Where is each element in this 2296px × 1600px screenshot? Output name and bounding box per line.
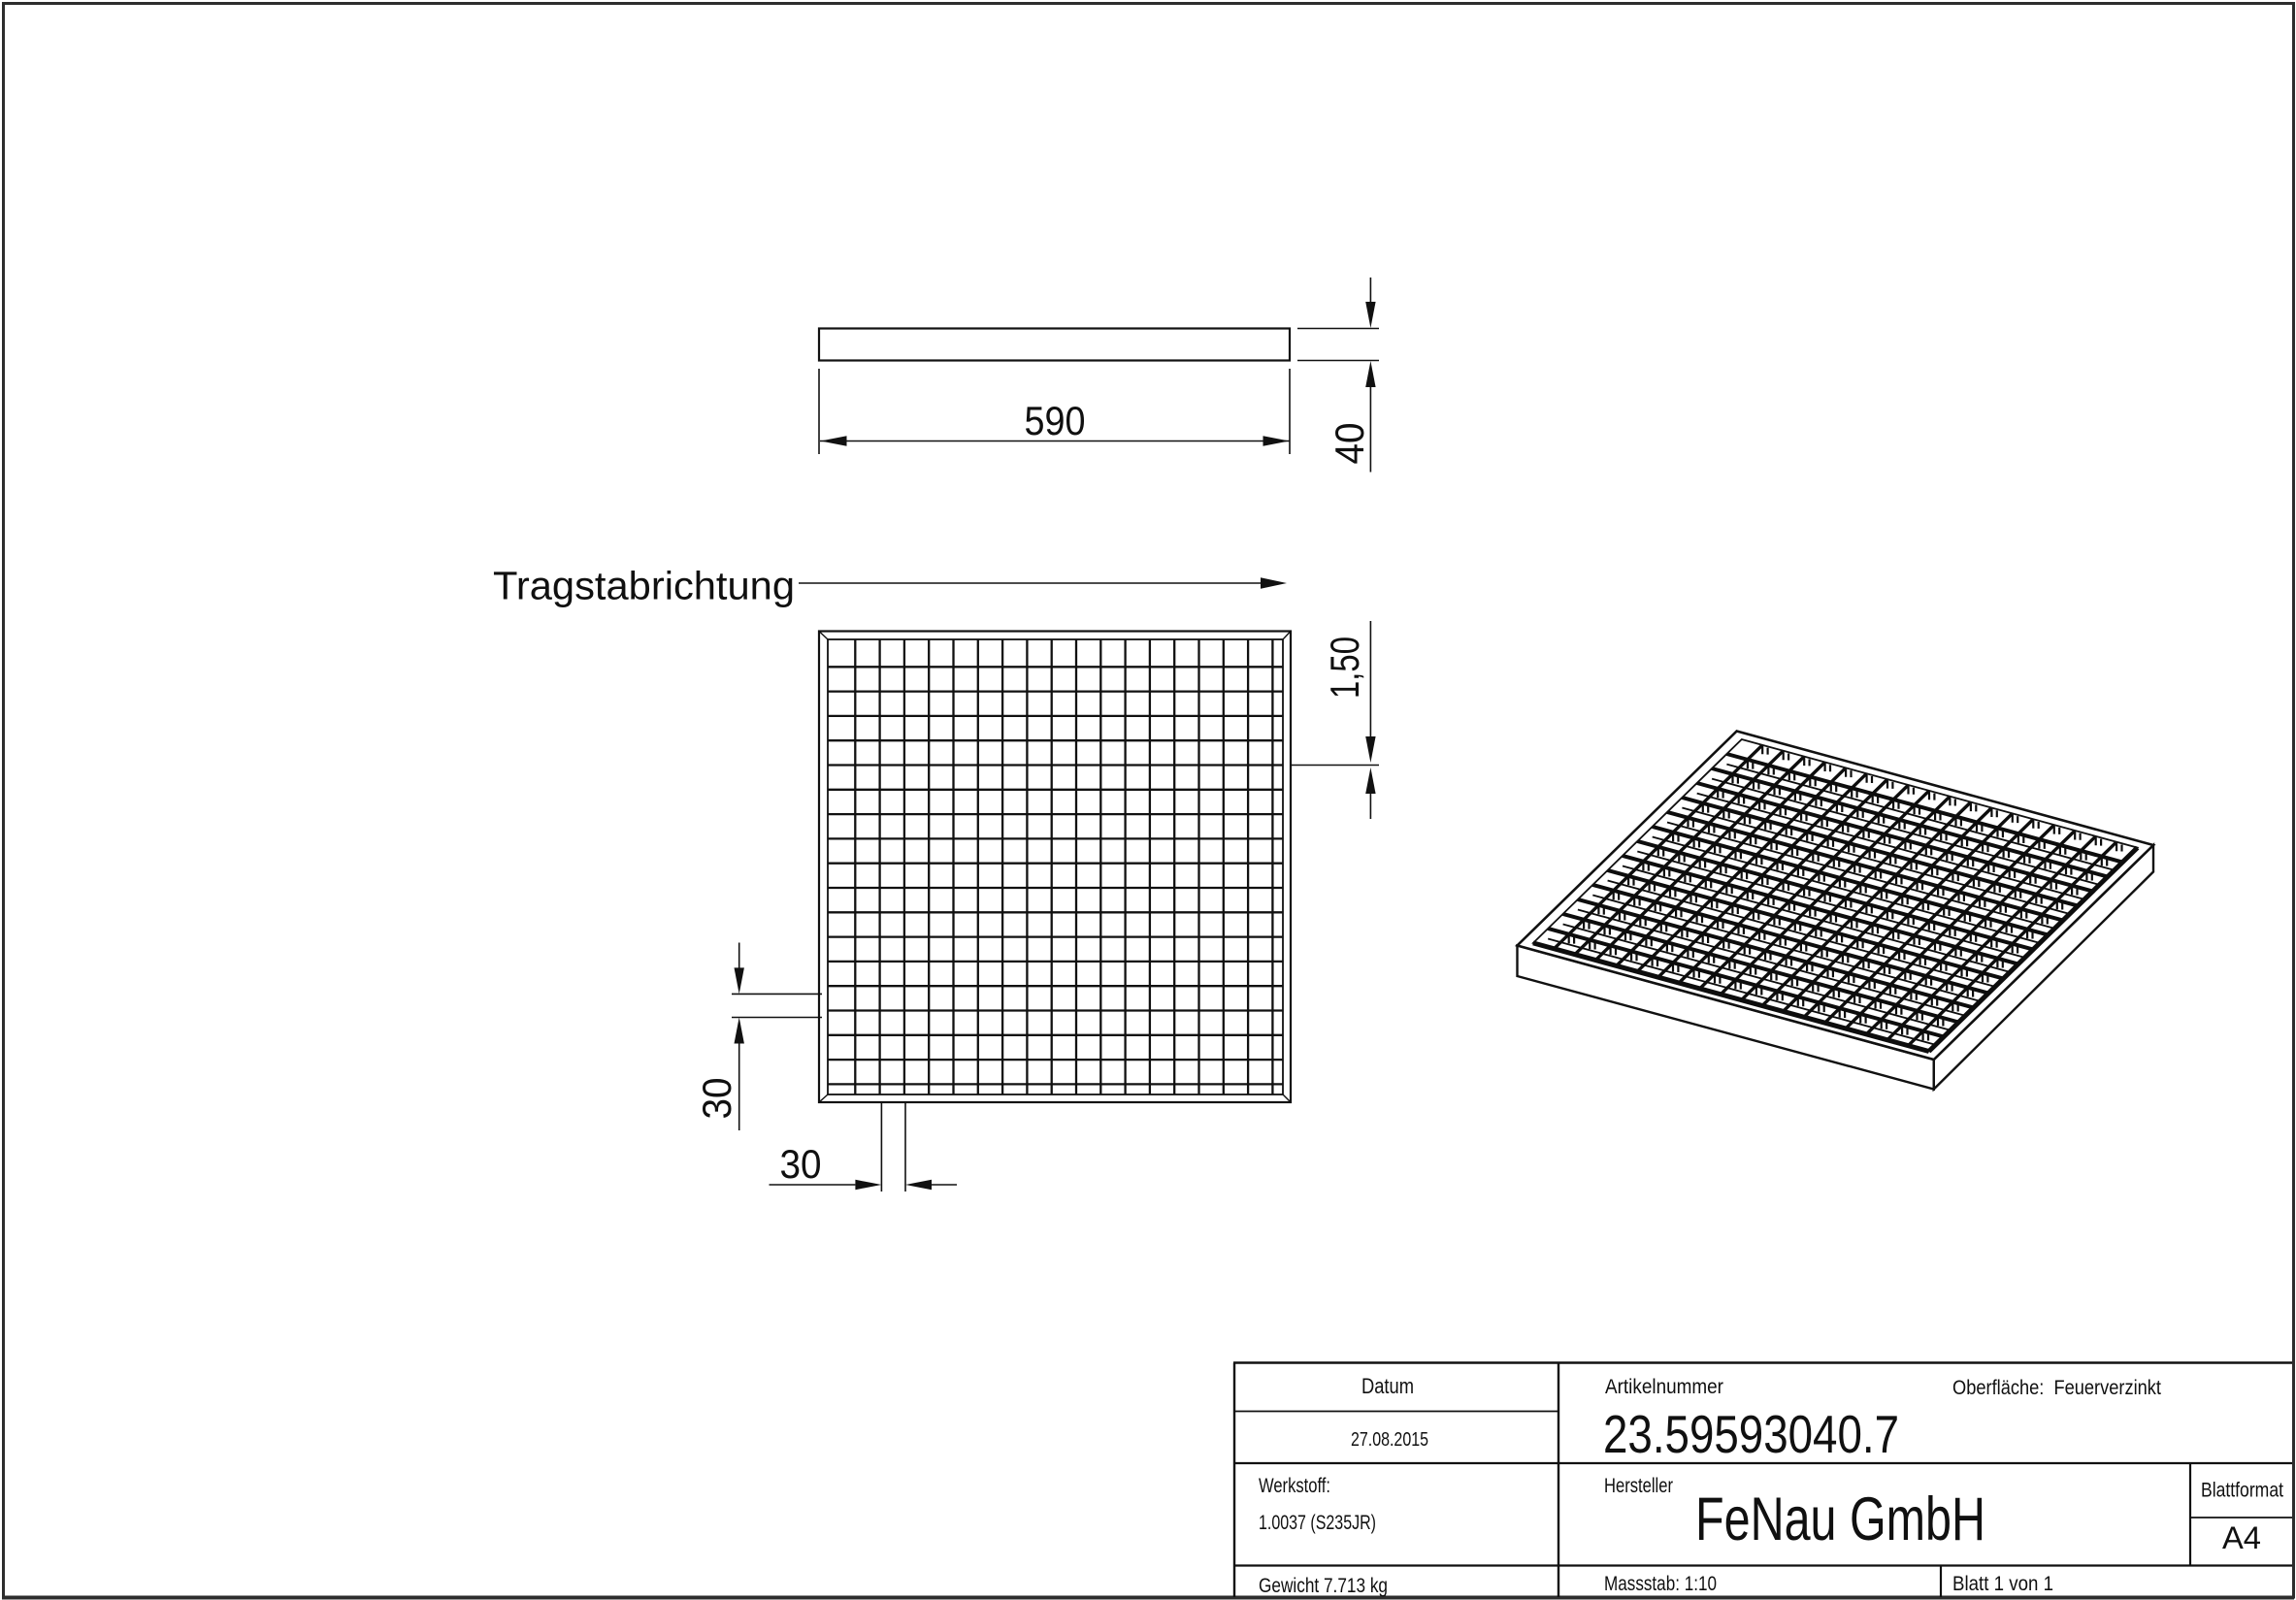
svg-text:1,50: 1,50 — [1322, 637, 1367, 699]
svg-text:1.0037 (S235JR): 1.0037 (S235JR) — [1259, 1512, 1376, 1534]
svg-text:A4: A4 — [2222, 1520, 2261, 1555]
svg-text:Datum: Datum — [1361, 1374, 1414, 1398]
svg-text:590: 590 — [1025, 398, 1086, 443]
svg-text:Oberfläche: Feuerverzinkt: Oberfläche: Feuerverzinkt — [1952, 1377, 2161, 1399]
svg-text:Gewicht 7.713 kg: Gewicht 7.713 kg — [1259, 1575, 1388, 1597]
svg-text:Massstab: 1:10: Massstab: 1:10 — [1604, 1573, 1717, 1595]
svg-text:Werkstoff:: Werkstoff: — [1259, 1475, 1330, 1497]
svg-text:30: 30 — [780, 1141, 822, 1187]
svg-text:Blattformat: Blattformat — [2201, 1480, 2283, 1502]
svg-text:FeNau GmbH: FeNau GmbH — [1695, 1486, 1985, 1553]
svg-text:Tragstabrichtung: Tragstabrichtung — [493, 564, 795, 608]
svg-text:Blatt 1 von 1: Blatt 1 von 1 — [1952, 1573, 2053, 1595]
svg-text:27.08.2015: 27.08.2015 — [1351, 1429, 1428, 1451]
svg-text:Hersteller: Hersteller — [1604, 1475, 1673, 1497]
svg-text:30: 30 — [694, 1078, 739, 1120]
svg-text:40: 40 — [1327, 423, 1372, 465]
svg-text:Artikelnummer: Artikelnummer — [1605, 1376, 1723, 1398]
svg-text:23.59593040.7: 23.59593040.7 — [1603, 1404, 1899, 1464]
